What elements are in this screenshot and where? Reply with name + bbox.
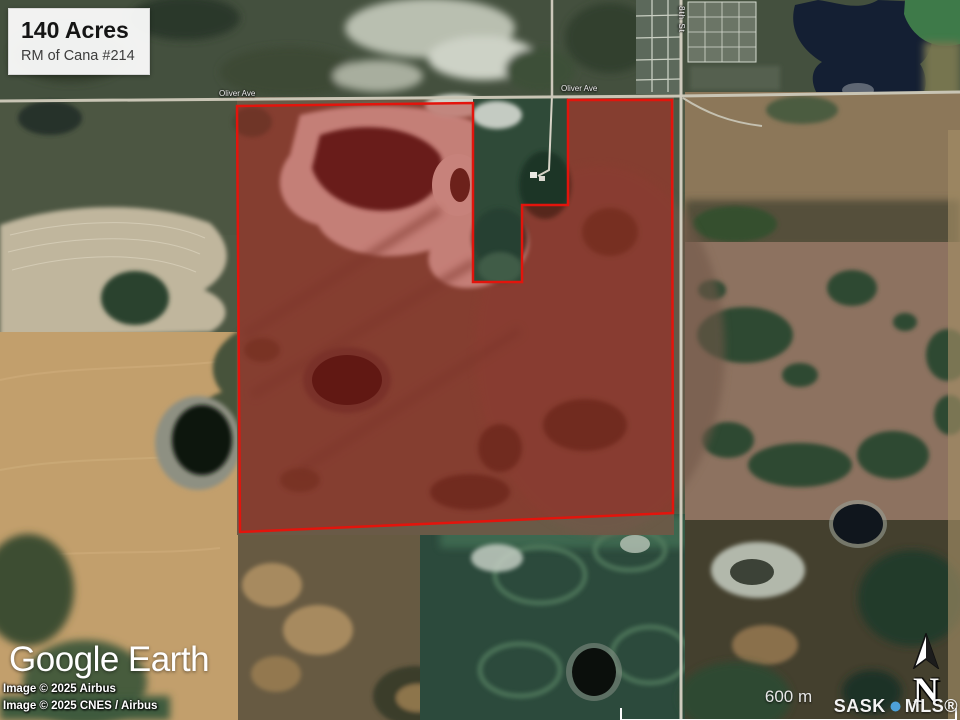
google-earth-logo-google: Google — [9, 640, 119, 679]
satellite-listing-image: 140 Acres RM of Cana #214 Oliver Ave Oli… — [0, 0, 960, 720]
road-label-oliver-ave-east: Oliver Ave — [561, 84, 597, 93]
attribution-line-2: Image © 2025 CNES / Airbus — [3, 698, 157, 715]
property-boundary — [237, 100, 673, 532]
attribution-line-1: Image © 2025 Airbus — [3, 681, 157, 698]
satellite-terrain — [0, 0, 960, 720]
listing-info-box: 140 Acres RM of Cana #214 — [8, 8, 150, 75]
google-earth-logo-earth: Earth — [128, 640, 209, 679]
imagery-attribution: Image © 2025 Airbus Image © 2025 CNES / … — [3, 681, 157, 715]
road-label-8th-st: 8th St — [677, 6, 686, 33]
watermark-sask: SASK — [834, 696, 886, 717]
municipality-subtitle: RM of Cana #214 — [21, 48, 135, 64]
north-arrow-icon — [911, 633, 941, 669]
watermark-mls: MLS® — [905, 696, 958, 717]
acreage-title: 140 Acres — [21, 18, 135, 43]
sask-mls-watermark: SASK MLS® — [834, 696, 958, 717]
mls-dot-icon — [890, 701, 901, 712]
road-label-oliver-ave-west: Oliver Ave — [219, 89, 255, 98]
google-earth-logo: GoogleEarth — [9, 640, 209, 680]
compass: N — [903, 633, 949, 706]
